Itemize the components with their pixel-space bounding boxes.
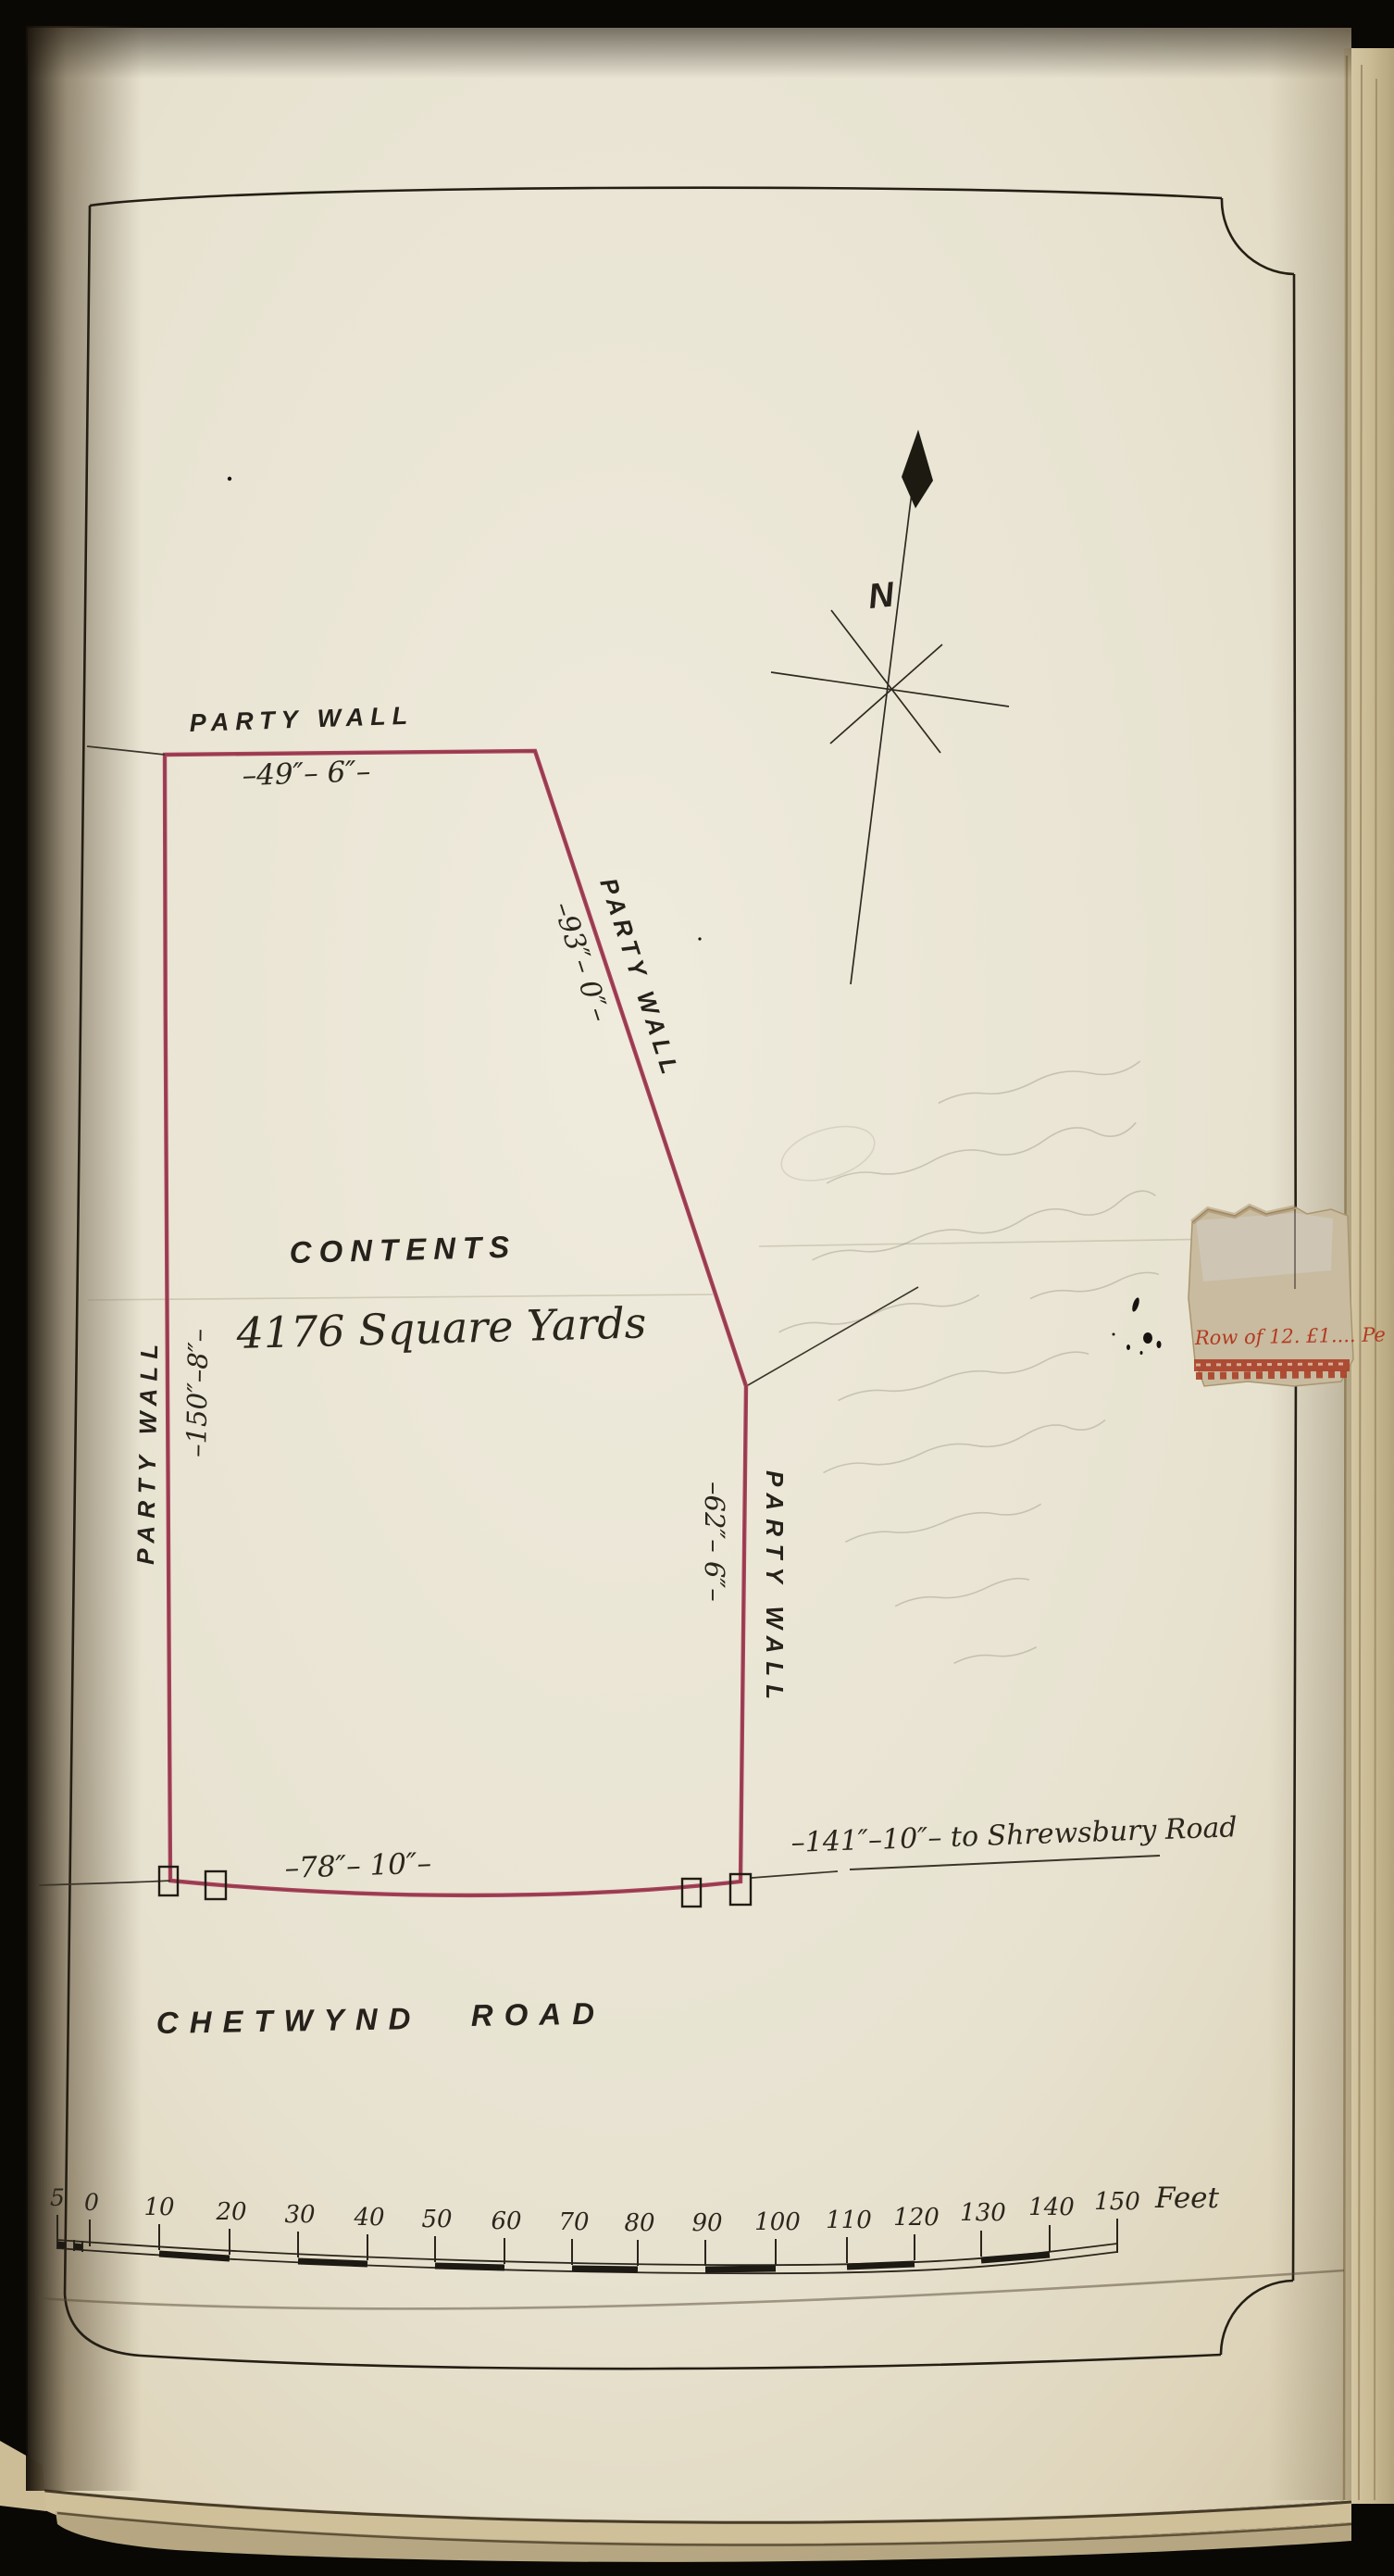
page-paper [28, 28, 1351, 2525]
party-wall-left-label: PARTY WALL [131, 1336, 163, 1565]
scale-tick-label: 5 [50, 2184, 65, 2211]
dim-bottom: –78″– 10″– [284, 1846, 432, 1885]
contents-heading: CONTENTS [289, 1230, 517, 1269]
dim-right: –62″– 6″– [699, 1482, 730, 1602]
scale-tick-label: 20 [215, 2198, 246, 2226]
road-name-word1: CHETWYND [156, 2001, 421, 2040]
scale-tick-label: 140 [1028, 2194, 1075, 2221]
scale-tick-label: 40 [353, 2204, 384, 2232]
scale-tick-label: 150 [1094, 2188, 1140, 2216]
scale-tick-label: 120 [893, 2204, 940, 2232]
scale-tick-label: 100 [754, 2208, 801, 2236]
scale-tick-label: 60 [491, 2207, 521, 2235]
dim-top: –49″– 6″– [242, 755, 371, 793]
party-wall-right-label: PARTY WALL [761, 1470, 789, 1707]
scale-tick-label: 30 [284, 2201, 315, 2229]
scale-tick-label: 110 [826, 2207, 872, 2234]
scale-tick-label: 70 [558, 2208, 589, 2236]
scale-tick-label: 130 [960, 2199, 1006, 2227]
road-name-word2: ROAD [470, 1995, 605, 2032]
spine-shadow [26, 26, 142, 2491]
fragment-gray-area [1196, 1213, 1333, 1282]
dim-left: –150″–8″– [180, 1329, 214, 1458]
scale-tick-label: 90 [691, 2209, 722, 2237]
scale-unit-label: Feet [1154, 2182, 1220, 2215]
scale-tick-label: 80 [624, 2209, 654, 2237]
top-shadow [26, 28, 1351, 79]
scale-tick-label: 50 [421, 2206, 452, 2233]
fragment-stamp-text: Row of 12. £1.... Pe [1194, 1323, 1386, 1349]
scanned-plan-page: PARTY WALL –49″– 6″– –93″– 0″– PARTY WAL… [0, 0, 1394, 2576]
scale-tick-label: 0 [84, 2189, 99, 2216]
page-stack-right [1344, 48, 1394, 2504]
scale-tick-label: 10 [143, 2194, 174, 2221]
